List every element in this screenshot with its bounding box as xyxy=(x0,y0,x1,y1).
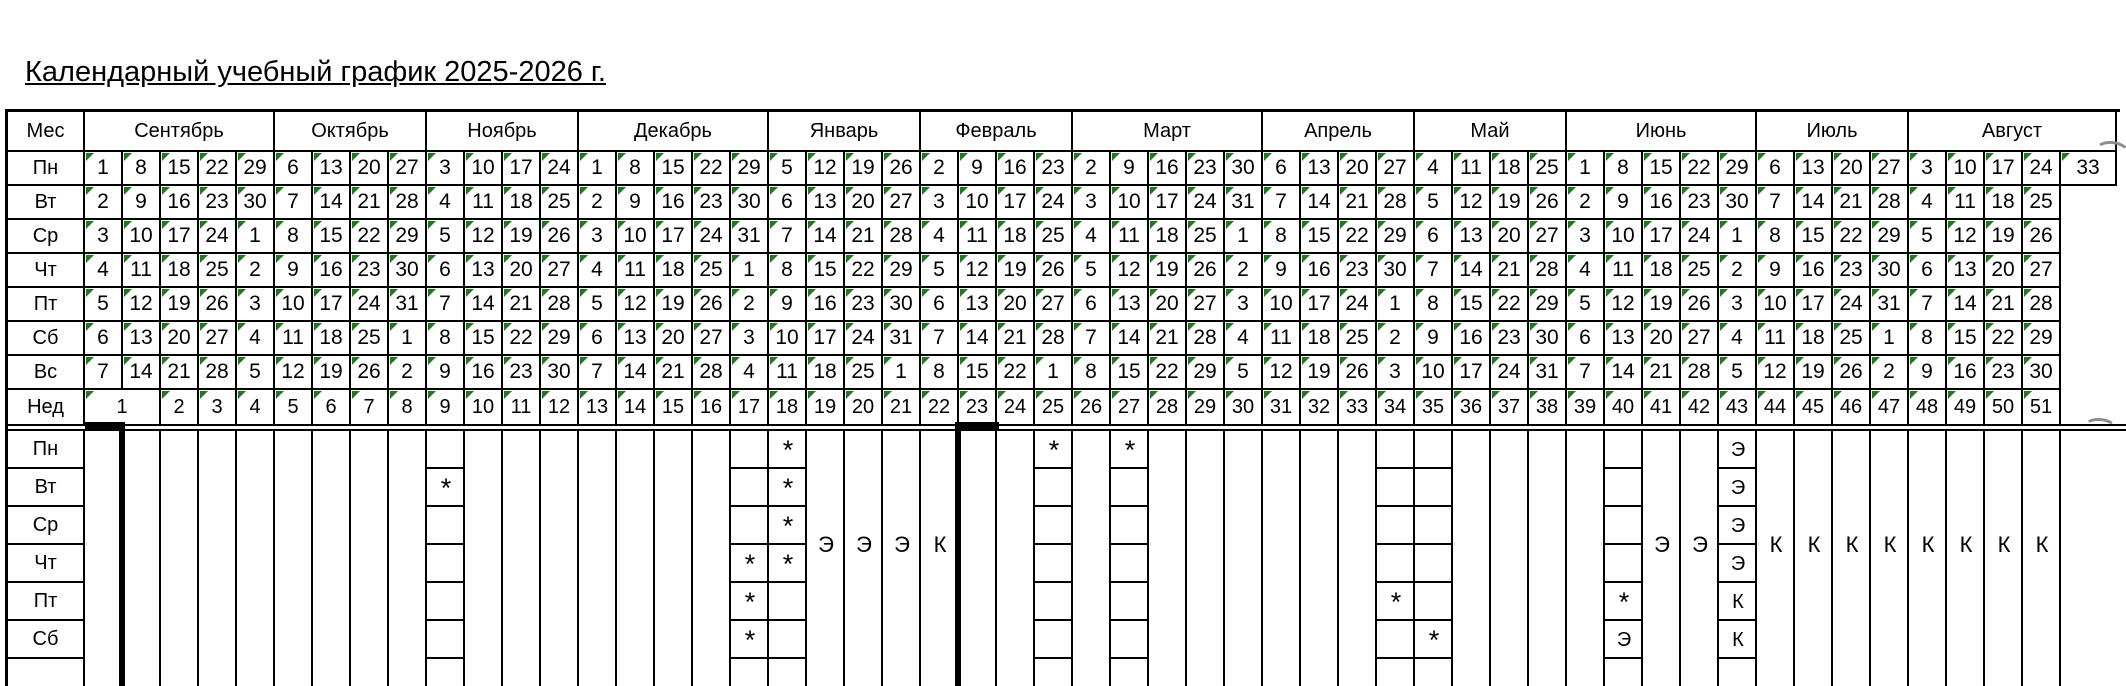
day-cell[interactable]: 24 xyxy=(693,220,731,254)
day-cell[interactable]: 5 xyxy=(1909,220,1947,254)
day-cell[interactable]: 9 xyxy=(1111,152,1149,186)
day-cell[interactable]: 29 xyxy=(541,322,579,356)
week-cell[interactable]: 32 xyxy=(1301,390,1339,424)
day-cell[interactable]: 23 xyxy=(1491,322,1529,356)
day-cell[interactable]: 19 xyxy=(1301,356,1339,390)
week-cell[interactable]: 34 xyxy=(1377,390,1415,424)
day-cell[interactable]: 16 xyxy=(1947,356,1985,390)
day-cell[interactable]: 10 xyxy=(123,220,161,254)
day-cell[interactable]: 4 xyxy=(1567,254,1605,288)
day-cell[interactable]: 21 xyxy=(1643,356,1681,390)
day-cell[interactable]: 15 xyxy=(1453,288,1491,322)
day-cell[interactable]: 19 xyxy=(845,152,883,186)
day-cell[interactable]: 4 xyxy=(579,254,617,288)
day-cell[interactable]: 29 xyxy=(389,220,427,254)
week-cell[interactable]: 23 xyxy=(959,390,997,424)
vacation-mark[interactable]: К xyxy=(2023,431,2061,659)
day-cell[interactable]: 17 xyxy=(807,322,845,356)
day-cell[interactable]: 31 xyxy=(731,220,769,254)
day-cell[interactable]: 9 xyxy=(427,356,465,390)
day-cell[interactable]: 8 xyxy=(123,152,161,186)
day-cell[interactable]: 21 xyxy=(997,322,1035,356)
day-cell[interactable]: 20 xyxy=(1643,322,1681,356)
day-cell[interactable]: 30 xyxy=(883,288,921,322)
day-cell[interactable]: 24 xyxy=(1491,356,1529,390)
week-cell[interactable]: 27 xyxy=(1111,390,1149,424)
day-cell[interactable]: 9 xyxy=(959,152,997,186)
day-cell[interactable]: 26 xyxy=(1529,186,1567,220)
day-cell[interactable]: 20 xyxy=(845,186,883,220)
day-cell[interactable]: 5 xyxy=(1225,356,1263,390)
day-cell[interactable]: 23 xyxy=(1035,152,1073,186)
day-cell[interactable]: 22 xyxy=(997,356,1035,390)
week-cell[interactable]: 1 xyxy=(85,390,161,424)
day-cell[interactable]: 5 xyxy=(1415,186,1453,220)
day-cell[interactable]: 17 xyxy=(1453,356,1491,390)
day-cell[interactable]: 27 xyxy=(1035,288,1073,322)
day-cell[interactable]: 3 xyxy=(237,288,275,322)
day-cell[interactable]: 29 xyxy=(883,254,921,288)
day-cell[interactable]: 7 xyxy=(275,186,313,220)
day-cell[interactable]: 22 xyxy=(351,220,389,254)
day-cell[interactable]: 29 xyxy=(237,152,275,186)
day-cell[interactable]: 18 xyxy=(1301,322,1339,356)
day-cell[interactable]: 22 xyxy=(503,322,541,356)
day-cell[interactable]: 22 xyxy=(845,254,883,288)
day-cell[interactable]: 9 xyxy=(1415,322,1453,356)
day-cell[interactable]: 24 xyxy=(1035,186,1073,220)
day-cell[interactable]: 1 xyxy=(883,356,921,390)
day-cell[interactable]: 1 xyxy=(579,152,617,186)
week-cell[interactable]: 51 xyxy=(2023,390,2061,424)
day-cell[interactable]: 19 xyxy=(1795,356,1833,390)
day-cell[interactable]: 4 xyxy=(1415,152,1453,186)
day-cell[interactable]: 2 xyxy=(85,186,123,220)
day-cell[interactable]: 6 xyxy=(85,322,123,356)
day-cell[interactable]: 6 xyxy=(1415,220,1453,254)
holiday-mark[interactable]: * xyxy=(769,545,807,583)
day-cell[interactable]: 6 xyxy=(427,254,465,288)
day-cell[interactable]: 1 xyxy=(85,152,123,186)
day-cell[interactable]: 3 xyxy=(921,186,959,220)
day-cell[interactable]: 8 xyxy=(921,356,959,390)
day-cell[interactable]: 28 xyxy=(1871,186,1909,220)
week-cell[interactable]: 44 xyxy=(1757,390,1795,424)
day-cell[interactable]: 3 xyxy=(1567,220,1605,254)
day-cell[interactable]: 14 xyxy=(617,356,655,390)
day-cell[interactable]: 25 xyxy=(1681,254,1719,288)
day-cell[interactable]: 8 xyxy=(1909,322,1947,356)
day-cell[interactable]: 27 xyxy=(883,186,921,220)
day-cell[interactable]: 15 xyxy=(1301,220,1339,254)
day-cell[interactable]: 24 xyxy=(1187,186,1225,220)
day-cell[interactable]: 14 xyxy=(807,220,845,254)
day-cell[interactable]: 30 xyxy=(389,254,427,288)
day-cell[interactable]: 26 xyxy=(351,356,389,390)
day-cell[interactable]: 12 xyxy=(123,288,161,322)
day-cell[interactable]: 18 xyxy=(1149,220,1187,254)
day-cell[interactable]: 26 xyxy=(2023,220,2061,254)
day-cell[interactable]: 9 xyxy=(1263,254,1301,288)
day-cell[interactable]: 21 xyxy=(1149,322,1187,356)
holiday-mark[interactable]: * xyxy=(731,583,769,621)
day-cell[interactable]: 22 xyxy=(199,152,237,186)
day-cell[interactable]: 19 xyxy=(1491,186,1529,220)
day-cell[interactable]: 7 xyxy=(1909,288,1947,322)
day-cell[interactable]: 17 xyxy=(1985,152,2023,186)
day-cell[interactable]: 20 xyxy=(997,288,1035,322)
day-cell[interactable]: 18 xyxy=(655,254,693,288)
day-cell[interactable]: 5 xyxy=(769,152,807,186)
day-cell[interactable]: 28 xyxy=(1377,186,1415,220)
week-cell[interactable]: 9 xyxy=(427,390,465,424)
day-cell[interactable]: 29 xyxy=(731,152,769,186)
holiday-mark[interactable]: * xyxy=(1377,583,1415,621)
day-cell[interactable]: 17 xyxy=(313,288,351,322)
day-cell[interactable]: 18 xyxy=(1491,152,1529,186)
day-cell[interactable]: 10 xyxy=(1111,186,1149,220)
week-cell[interactable]: 37 xyxy=(1491,390,1529,424)
day-cell[interactable]: 1 xyxy=(237,220,275,254)
day-cell[interactable]: 23 xyxy=(693,186,731,220)
day-cell[interactable]: 31 xyxy=(883,322,921,356)
day-cell[interactable]: 8 xyxy=(1073,356,1111,390)
day-cell[interactable]: 30 xyxy=(541,356,579,390)
day-cell[interactable]: 1 xyxy=(1035,356,1073,390)
holiday-mark[interactable]: * xyxy=(731,621,769,659)
day-cell[interactable]: 20 xyxy=(1833,152,1871,186)
day-cell[interactable]: 5 xyxy=(1567,288,1605,322)
day-cell[interactable]: 20 xyxy=(1985,254,2023,288)
week-cell[interactable]: 22 xyxy=(921,390,959,424)
day-cell[interactable]: 12 xyxy=(1605,288,1643,322)
day-cell[interactable]: 25 xyxy=(2023,186,2061,220)
day-cell[interactable]: 14 xyxy=(1453,254,1491,288)
day-cell[interactable]: 27 xyxy=(1377,152,1415,186)
week-cell[interactable]: 39 xyxy=(1567,390,1605,424)
week-cell[interactable]: 40 xyxy=(1605,390,1643,424)
day-cell[interactable]: 31 xyxy=(389,288,427,322)
day-cell[interactable]: 23 xyxy=(1681,186,1719,220)
day-cell[interactable]: 26 xyxy=(1833,356,1871,390)
day-cell[interactable]: 3 xyxy=(731,322,769,356)
week-cell[interactable]: 41 xyxy=(1643,390,1681,424)
day-cell[interactable]: 7 xyxy=(427,288,465,322)
day-cell[interactable]: 27 xyxy=(1187,288,1225,322)
day-cell[interactable]: 9 xyxy=(275,254,313,288)
day-cell[interactable]: 14 xyxy=(1605,356,1643,390)
day-cell[interactable]: 10 xyxy=(1757,288,1795,322)
day-cell[interactable]: 27 xyxy=(541,254,579,288)
exam-mark[interactable]: Э xyxy=(807,431,845,659)
day-cell[interactable]: 13 xyxy=(1947,254,1985,288)
day-cell[interactable]: 15 xyxy=(1795,220,1833,254)
day-cell[interactable]: 22 xyxy=(1833,220,1871,254)
day-cell[interactable]: 13 xyxy=(465,254,503,288)
day-cell[interactable]: 22 xyxy=(1339,220,1377,254)
day-cell[interactable]: 18 xyxy=(503,186,541,220)
day-cell[interactable]: 29 xyxy=(1871,220,1909,254)
day-cell[interactable]: 8 xyxy=(769,254,807,288)
week-cell[interactable]: 18 xyxy=(769,390,807,424)
holiday-mark[interactable]: * xyxy=(1605,583,1643,621)
day-cell[interactable]: 3 xyxy=(1719,288,1757,322)
day-cell[interactable]: 25 xyxy=(199,254,237,288)
day-cell[interactable]: 28 xyxy=(2023,288,2061,322)
week-cell[interactable]: 50 xyxy=(1985,390,2023,424)
day-cell[interactable]: 4 xyxy=(731,356,769,390)
week-cell[interactable]: 42 xyxy=(1681,390,1719,424)
vacation-mark[interactable]: К xyxy=(1909,431,1947,659)
day-cell[interactable]: 10 xyxy=(465,152,503,186)
day-cell[interactable]: 6 xyxy=(1909,254,1947,288)
day-cell[interactable]: 19 xyxy=(313,356,351,390)
day-cell[interactable]: 7 xyxy=(1073,322,1111,356)
day-cell[interactable]: 26 xyxy=(883,152,921,186)
day-cell[interactable]: 24 xyxy=(1339,288,1377,322)
day-cell[interactable]: 13 xyxy=(313,152,351,186)
day-cell[interactable]: 10 xyxy=(1263,288,1301,322)
day-cell[interactable]: 28 xyxy=(1681,356,1719,390)
day-cell[interactable]: 19 xyxy=(1985,220,2023,254)
week-cell[interactable]: 31 xyxy=(1263,390,1301,424)
day-cell[interactable]: 25 xyxy=(693,254,731,288)
day-cell[interactable]: 6 xyxy=(579,322,617,356)
day-cell[interactable]: 15 xyxy=(655,152,693,186)
day-cell[interactable]: 13 xyxy=(617,322,655,356)
day-cell[interactable]: 10 xyxy=(275,288,313,322)
day-cell[interactable]: 4 xyxy=(1719,322,1757,356)
day-cell[interactable]: 6 xyxy=(1567,322,1605,356)
day-cell[interactable]: 3 xyxy=(85,220,123,254)
day-cell[interactable]: 8 xyxy=(427,322,465,356)
schedule-mark[interactable]: К xyxy=(1719,621,1757,659)
day-cell[interactable]: 23 xyxy=(199,186,237,220)
day-cell[interactable]: 7 xyxy=(85,356,123,390)
day-cell[interactable]: 12 xyxy=(1453,186,1491,220)
day-cell[interactable]: 13 xyxy=(1453,220,1491,254)
day-cell[interactable]: 24 xyxy=(1833,288,1871,322)
week-cell[interactable]: 48 xyxy=(1909,390,1947,424)
day-cell[interactable]: 28 xyxy=(1529,254,1567,288)
day-cell[interactable]: 8 xyxy=(617,152,655,186)
day-cell[interactable]: 30 xyxy=(1377,254,1415,288)
day-cell[interactable]: 30 xyxy=(1871,254,1909,288)
week-cell[interactable]: 7 xyxy=(351,390,389,424)
day-cell[interactable]: 17 xyxy=(1643,220,1681,254)
day-cell[interactable]: 2 xyxy=(1567,186,1605,220)
day-cell[interactable]: 3 xyxy=(1225,288,1263,322)
week-cell[interactable]: 21 xyxy=(883,390,921,424)
day-cell[interactable]: 25 xyxy=(1529,152,1567,186)
day-cell[interactable]: 23 xyxy=(1833,254,1871,288)
day-cell[interactable]: 29 xyxy=(1719,152,1757,186)
day-cell[interactable]: 14 xyxy=(1947,288,1985,322)
day-cell[interactable]: 11 xyxy=(1605,254,1643,288)
day-cell[interactable]: 10 xyxy=(769,322,807,356)
day-cell[interactable]: 26 xyxy=(1035,254,1073,288)
day-cell[interactable]: 8 xyxy=(1415,288,1453,322)
day-cell[interactable]: 2 xyxy=(1719,254,1757,288)
week-cell[interactable]: 8 xyxy=(389,390,427,424)
day-cell[interactable]: 3 xyxy=(427,152,465,186)
day-cell[interactable]: 5 xyxy=(921,254,959,288)
day-cell[interactable]: 20 xyxy=(351,152,389,186)
day-cell[interactable]: 23 xyxy=(1985,356,2023,390)
exam-mark[interactable]: Э xyxy=(845,431,883,659)
day-cell[interactable]: 28 xyxy=(883,220,921,254)
day-cell[interactable]: 7 xyxy=(579,356,617,390)
day-cell[interactable]: 21 xyxy=(503,288,541,322)
day-cell[interactable]: 19 xyxy=(997,254,1035,288)
week-cell[interactable]: 35 xyxy=(1415,390,1453,424)
schedule-mark[interactable]: Э xyxy=(1719,545,1757,583)
week-cell[interactable]: 16 xyxy=(693,390,731,424)
day-cell[interactable]: 31 xyxy=(1225,186,1263,220)
day-cell[interactable]: 16 xyxy=(1453,322,1491,356)
day-cell[interactable]: 7 xyxy=(1415,254,1453,288)
day-cell[interactable]: 13 xyxy=(1605,322,1643,356)
day-cell[interactable]: 4 xyxy=(921,220,959,254)
day-cell[interactable]: 4 xyxy=(85,254,123,288)
day-cell[interactable]: 30 xyxy=(2023,356,2061,390)
day-cell[interactable]: 9 xyxy=(769,288,807,322)
day-cell[interactable]: 14 xyxy=(313,186,351,220)
week-cell[interactable]: 15 xyxy=(655,390,693,424)
day-cell[interactable]: 27 xyxy=(693,322,731,356)
day-cell[interactable]: 3 xyxy=(1073,186,1111,220)
week-cell[interactable]: 14 xyxy=(617,390,655,424)
vacation-mark[interactable]: К xyxy=(1871,431,1909,659)
day-cell[interactable]: 13 xyxy=(807,186,845,220)
day-cell[interactable]: 7 xyxy=(1757,186,1795,220)
day-cell[interactable]: 21 xyxy=(1833,186,1871,220)
day-cell[interactable]: 29 xyxy=(2023,322,2061,356)
holiday-mark[interactable]: * xyxy=(731,545,769,583)
day-cell[interactable]: 21 xyxy=(1339,186,1377,220)
day-cell[interactable]: 24 xyxy=(199,220,237,254)
day-cell[interactable]: 15 xyxy=(313,220,351,254)
day-cell[interactable]: 7 xyxy=(921,322,959,356)
day-cell[interactable]: 12 xyxy=(1111,254,1149,288)
day-cell[interactable]: 14 xyxy=(123,356,161,390)
week-cell[interactable]: 17 xyxy=(731,390,769,424)
day-cell[interactable]: 6 xyxy=(1263,152,1301,186)
schedule-mark[interactable]: Э xyxy=(1719,469,1757,507)
day-cell[interactable]: 16 xyxy=(655,186,693,220)
day-cell[interactable]: 15 xyxy=(1947,322,1985,356)
day-cell[interactable]: 6 xyxy=(769,186,807,220)
week-cell[interactable]: 26 xyxy=(1073,390,1111,424)
day-cell[interactable]: 23 xyxy=(351,254,389,288)
day-cell[interactable]: 9 xyxy=(123,186,161,220)
day-cell[interactable]: 11 xyxy=(123,254,161,288)
day-cell[interactable]: 26 xyxy=(693,288,731,322)
day-cell[interactable]: 29 xyxy=(1377,220,1415,254)
day-cell[interactable]: 23 xyxy=(1187,152,1225,186)
day-cell[interactable]: 25 xyxy=(1035,220,1073,254)
day-cell[interactable]: 4 xyxy=(1909,186,1947,220)
day-cell[interactable]: 21 xyxy=(1985,288,2023,322)
day-cell[interactable]: 15 xyxy=(959,356,997,390)
day-cell[interactable]: 8 xyxy=(1605,152,1643,186)
day-cell[interactable]: 21 xyxy=(655,356,693,390)
exam-mark[interactable]: Э xyxy=(883,431,921,659)
day-cell[interactable]: 10 xyxy=(959,186,997,220)
day-cell[interactable]: 16 xyxy=(807,288,845,322)
day-cell[interactable]: 2 xyxy=(389,356,427,390)
day-cell[interactable]: 7 xyxy=(1567,356,1605,390)
day-cell[interactable]: 26 xyxy=(1339,356,1377,390)
day-cell[interactable]: 25 xyxy=(845,356,883,390)
day-cell[interactable]: 11 xyxy=(275,322,313,356)
day-cell[interactable]: 21 xyxy=(1491,254,1529,288)
day-cell[interactable]: 19 xyxy=(1643,288,1681,322)
week-cell[interactable]: 10 xyxy=(465,390,503,424)
day-cell[interactable]: 4 xyxy=(1225,322,1263,356)
day-cell[interactable]: 18 xyxy=(807,356,845,390)
day-cell[interactable]: 22 xyxy=(1681,152,1719,186)
day-cell[interactable]: 1 xyxy=(389,322,427,356)
day-cell[interactable]: 10 xyxy=(1415,356,1453,390)
day-cell[interactable]: 5 xyxy=(427,220,465,254)
holiday-mark[interactable]: * xyxy=(1111,431,1149,469)
day-cell[interactable]: 24 xyxy=(2023,152,2061,186)
day-cell[interactable]: 16 xyxy=(997,152,1035,186)
day-cell[interactable]: 22 xyxy=(1985,322,2023,356)
day-cell[interactable]: 17 xyxy=(1795,288,1833,322)
day-cell[interactable]: 19 xyxy=(503,220,541,254)
day-cell[interactable]: 16 xyxy=(1149,152,1187,186)
day-cell[interactable]: 19 xyxy=(655,288,693,322)
day-cell[interactable]: 11 xyxy=(1757,322,1795,356)
vacation-mark[interactable]: К xyxy=(921,431,959,659)
holiday-mark[interactable]: * xyxy=(427,469,465,507)
day-cell[interactable]: 23 xyxy=(503,356,541,390)
day-cell[interactable]: 8 xyxy=(275,220,313,254)
day-cell[interactable]: 2 xyxy=(1225,254,1263,288)
day-cell[interactable]: 11 xyxy=(1947,186,1985,220)
day-cell[interactable]: 18 xyxy=(1795,322,1833,356)
week-cell[interactable]: 46 xyxy=(1833,390,1871,424)
day-cell[interactable]: 1 xyxy=(731,254,769,288)
day-cell[interactable]: 18 xyxy=(997,220,1035,254)
day-cell[interactable]: 16 xyxy=(1795,254,1833,288)
day-cell[interactable]: 15 xyxy=(465,322,503,356)
week-cell[interactable]: 3 xyxy=(199,390,237,424)
day-cell[interactable]: 11 xyxy=(959,220,997,254)
day-cell[interactable]: 3 xyxy=(1909,152,1947,186)
day-cell[interactable]: 26 xyxy=(199,288,237,322)
week-cell[interactable]: 13 xyxy=(579,390,617,424)
day-cell[interactable]: 9 xyxy=(1605,186,1643,220)
day-cell[interactable]: 24 xyxy=(541,152,579,186)
day-cell[interactable]: 20 xyxy=(655,322,693,356)
day-cell[interactable]: 4 xyxy=(237,322,275,356)
exam-mark[interactable]: Э xyxy=(1681,431,1719,659)
day-cell[interactable]: 7 xyxy=(769,220,807,254)
day-cell[interactable]: 11 xyxy=(617,254,655,288)
day-cell[interactable]: 6 xyxy=(1757,152,1795,186)
day-cell[interactable]: 11 xyxy=(465,186,503,220)
day-cell[interactable]: 11 xyxy=(1111,220,1149,254)
day-cell[interactable]: 25 xyxy=(1833,322,1871,356)
day-cell[interactable]: 20 xyxy=(161,322,199,356)
schedule-mark[interactable]: Э xyxy=(1719,431,1757,469)
day-cell[interactable]: 24 xyxy=(845,322,883,356)
schedule-mark[interactable]: К xyxy=(1719,583,1757,621)
day-cell[interactable]: 11 xyxy=(1453,152,1491,186)
